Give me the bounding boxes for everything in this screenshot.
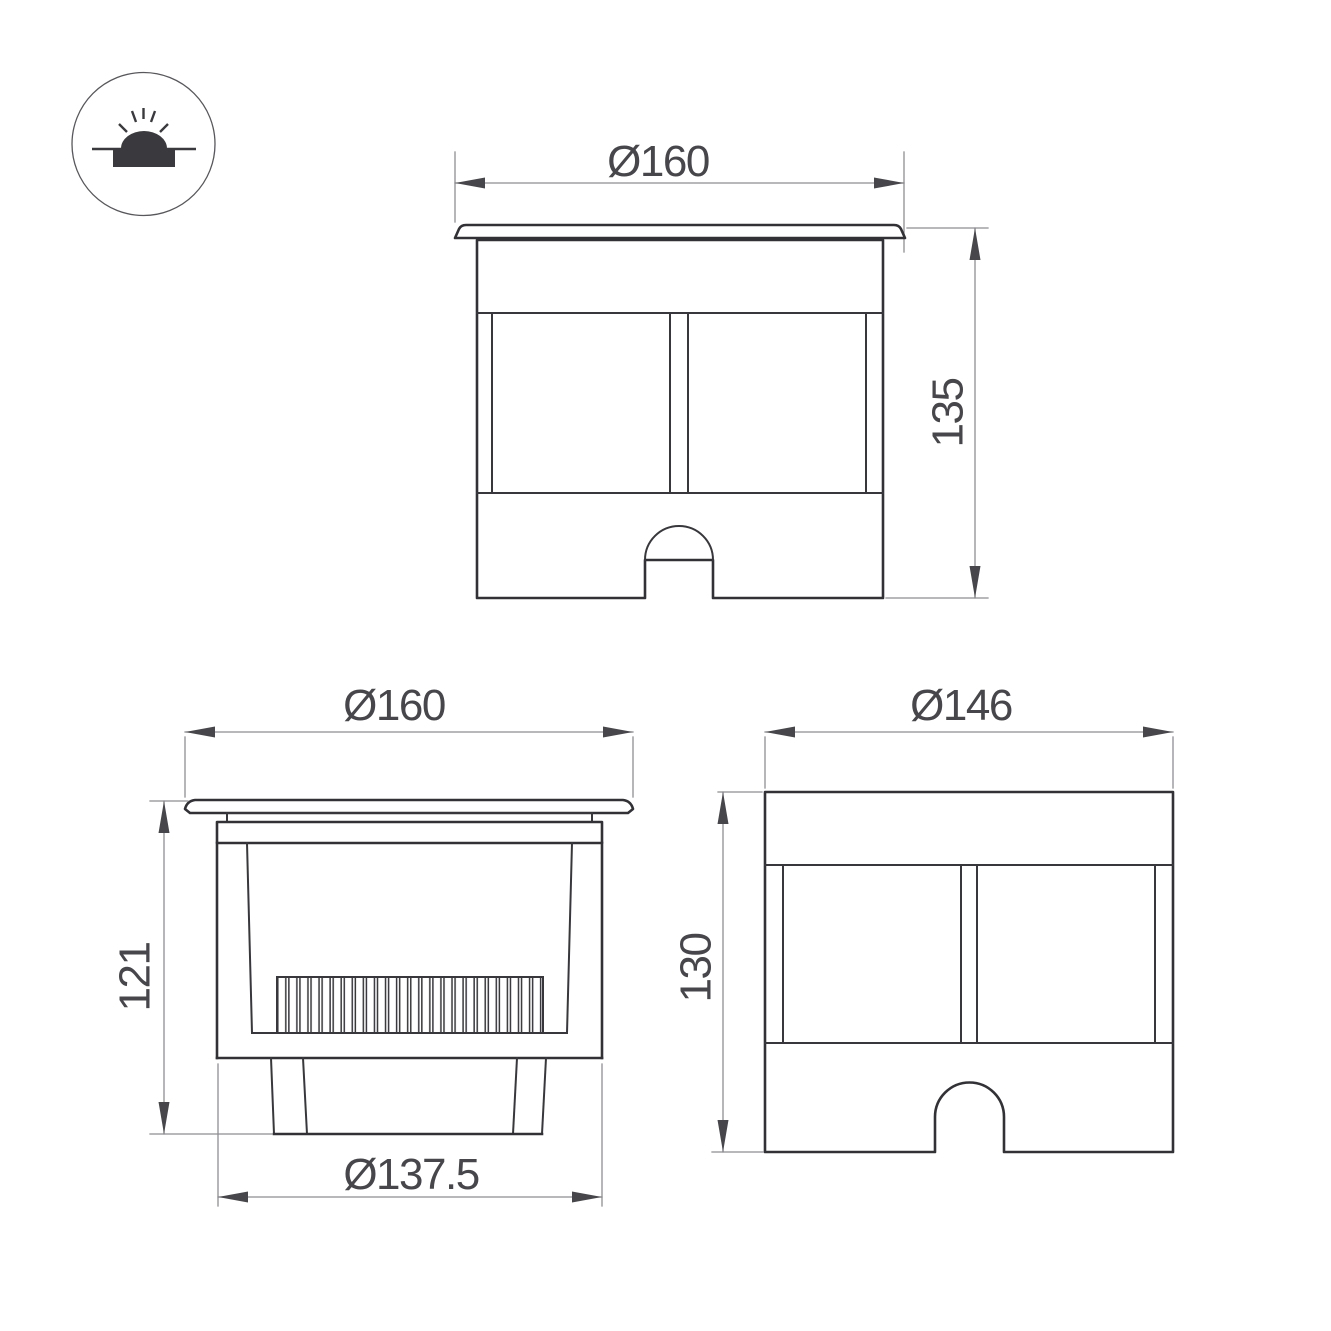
side-heatsink-fins — [277, 977, 543, 1033]
front-diameter-label: Ø160 — [607, 137, 709, 186]
recessed-light-icon — [72, 73, 215, 216]
side-body-diameter-label: Ø137.5 — [343, 1150, 478, 1199]
icon-light-rays — [119, 108, 168, 132]
housing-body — [765, 792, 1173, 1152]
side-mounting-plate — [217, 1033, 602, 1058]
dim-front-height: 135 — [886, 228, 988, 598]
icon-dome — [121, 131, 167, 149]
side-collar — [217, 822, 602, 843]
side-diameter-label: Ø160 — [343, 681, 445, 730]
side-flange-lip — [227, 813, 592, 822]
front-body — [477, 240, 883, 598]
housing-diameter-label: Ø146 — [910, 681, 1012, 730]
drawing-canvas: Ø160 135 — [0, 0, 1331, 1331]
side-lower-can — [271, 1058, 546, 1134]
technical-drawing: Ø160 135 — [0, 0, 1331, 1331]
front-flange — [455, 225, 905, 238]
side-flange — [185, 800, 633, 813]
dim-housing-height: 130 — [672, 792, 764, 1152]
dim-side-diameter: Ø160 — [185, 681, 633, 797]
view-side: Ø160 — [111, 681, 634, 1206]
housing-height-label: 130 — [672, 934, 721, 1003]
side-height-label: 121 — [111, 943, 160, 1012]
icon-housing — [113, 149, 175, 167]
view-housing: Ø146 130 — [672, 681, 1174, 1152]
front-height-label: 135 — [924, 379, 973, 448]
view-front: Ø160 135 — [455, 137, 988, 598]
dim-housing-diameter: Ø146 — [765, 681, 1173, 788]
